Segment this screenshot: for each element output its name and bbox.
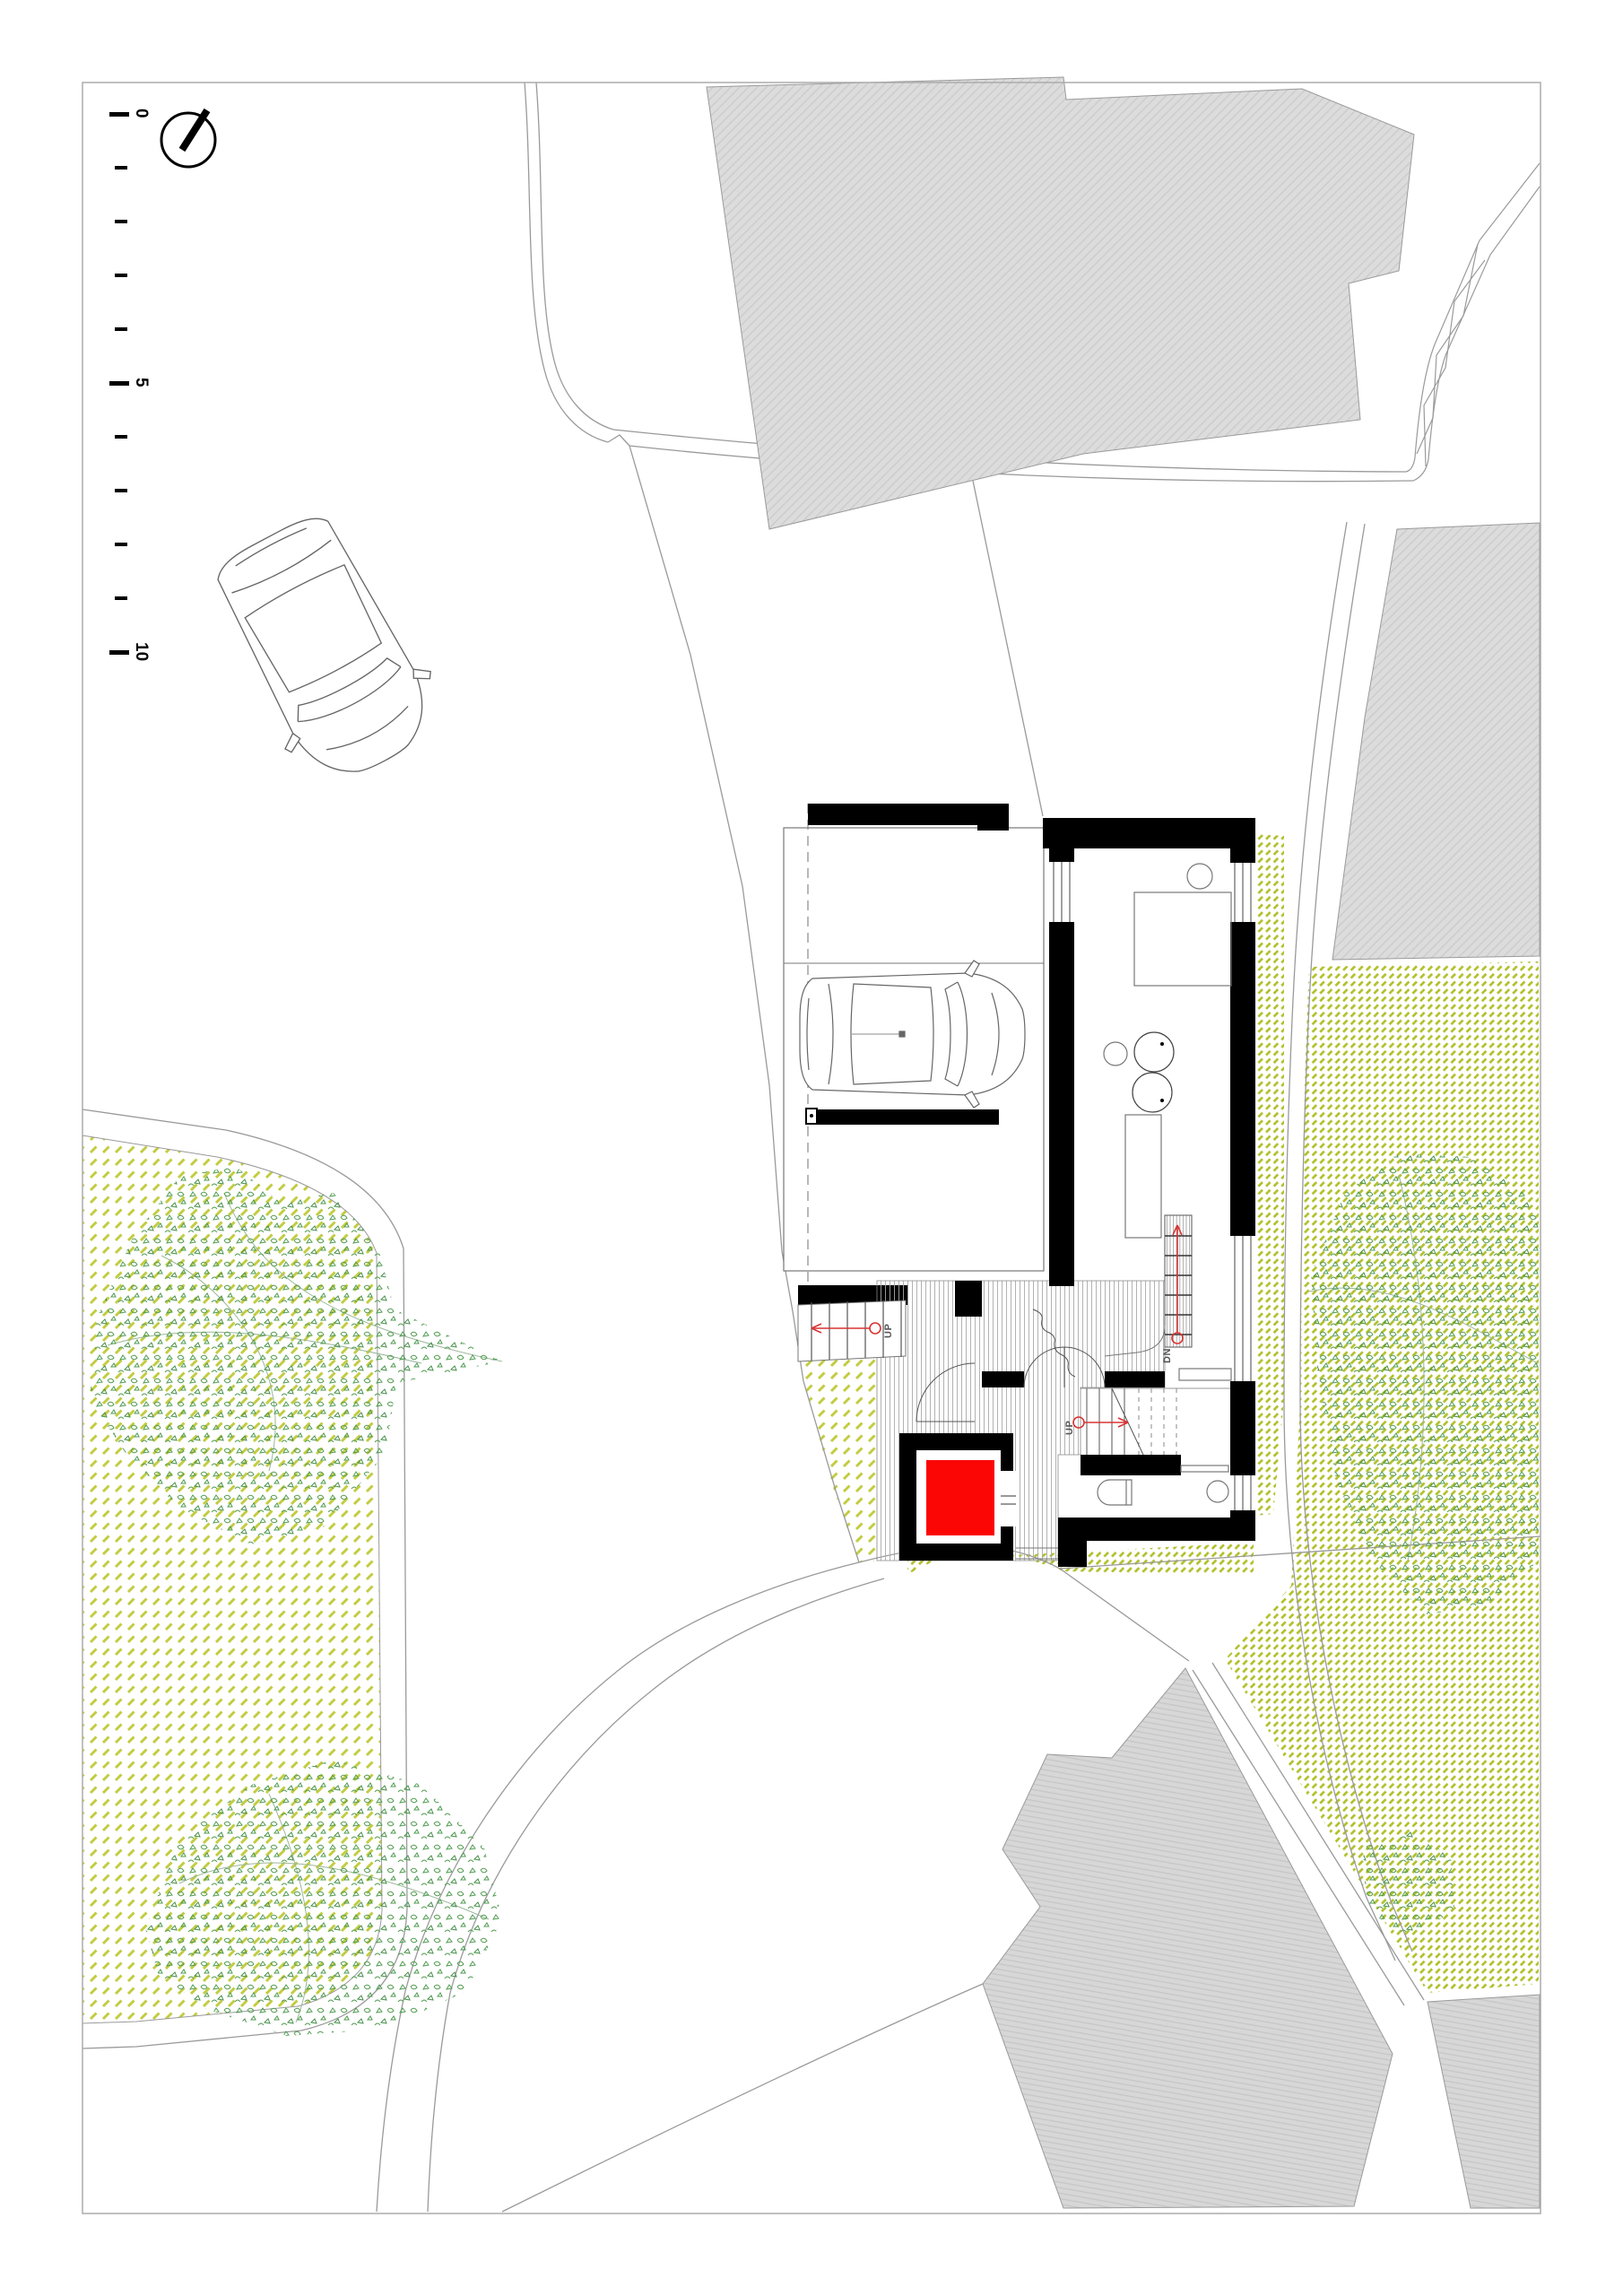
scale-bar: 0 5 10: [109, 109, 151, 661]
interior-stair-up: UP: [1064, 1388, 1230, 1455]
parcel-line-to-house: [973, 481, 1043, 816]
elevator: [899, 1433, 1016, 1561]
bathroom: [1098, 1480, 1228, 1505]
boundary-southwest-2: [428, 1578, 884, 2212]
neighbor-building-east: [1332, 523, 1540, 960]
wall-bath-corner: [1058, 1518, 1087, 1567]
wall-hall-band-right: [1105, 1371, 1165, 1387]
carport-wall-middle: [817, 1109, 999, 1125]
wall-west: [1049, 922, 1074, 1286]
wall-hall-stub: [955, 1281, 982, 1317]
steps-zigzag-1: [1417, 244, 1478, 454]
road-edge-west-outer: [525, 83, 608, 442]
elevator-door-gap: [1001, 1471, 1016, 1526]
table-dot-1: [1160, 1042, 1164, 1046]
road-edge-west-inner: [536, 83, 613, 430]
kitchen-counter: [1125, 1115, 1161, 1238]
scale-label-5: 5: [132, 378, 151, 387]
round-table-2: [1133, 1073, 1172, 1112]
neighbor-building-southeast: [1428, 1995, 1540, 2208]
steps-zigzag-2: [1424, 260, 1485, 466]
wall-east-pier: [1230, 848, 1255, 863]
window-east-3: [1235, 1475, 1251, 1510]
wall-bath-north: [1081, 1455, 1181, 1475]
table-dot-2: [1160, 1099, 1164, 1102]
grass-entry-wedge: [801, 1354, 877, 1562]
carport-post-dot: [810, 1114, 813, 1118]
steps-rail-upper: [1406, 163, 1540, 472]
boundary-bottom: [502, 1984, 983, 2212]
carport-wall-bridge: [977, 807, 1009, 831]
carport-car: [800, 961, 1025, 1108]
scale-label-10: 10: [132, 642, 151, 661]
washbasin: [1207, 1481, 1228, 1502]
windows: [1054, 862, 1251, 1510]
wall-east-middle: [1230, 1381, 1255, 1475]
wall-east-upper: [1230, 922, 1255, 1236]
wall-bath-south: [1087, 1518, 1255, 1541]
interior-stair-arrow: [1073, 1417, 1128, 1428]
wall-west-pier: [1049, 848, 1074, 862]
small-round-table: [1104, 1042, 1127, 1065]
neighbor-building-north: [707, 77, 1414, 529]
road-fork-notch: [608, 435, 629, 446]
street-car: [194, 500, 457, 799]
wall-north: [1043, 818, 1255, 848]
scale-label-0: 0: [132, 109, 151, 118]
stair-down-label: DN: [1162, 1348, 1173, 1363]
window-west: [1054, 862, 1070, 922]
exterior-stair-label: UP: [883, 1324, 894, 1338]
boundary-south-2: [1060, 1569, 1189, 1661]
wall-hall-band-left: [982, 1371, 1024, 1387]
bath-shelf: [1181, 1465, 1228, 1472]
north-arrow-icon: [161, 110, 215, 167]
grass-east-strip: [1255, 834, 1284, 1516]
interior-stair-label: UP: [1064, 1421, 1075, 1435]
window-east-2: [1235, 1236, 1251, 1381]
round-table-1: [1134, 1032, 1174, 1072]
window-east-1: [1235, 863, 1251, 922]
elevator-cab: [926, 1460, 994, 1535]
hill-path-steps: [1406, 163, 1540, 481]
table: [1134, 892, 1231, 986]
round-stool: [1187, 864, 1212, 889]
site-plan-drawing: UP: [0, 0, 1623, 2296]
window-bench: [1179, 1369, 1231, 1380]
steps-rail-lower: [1413, 187, 1540, 481]
